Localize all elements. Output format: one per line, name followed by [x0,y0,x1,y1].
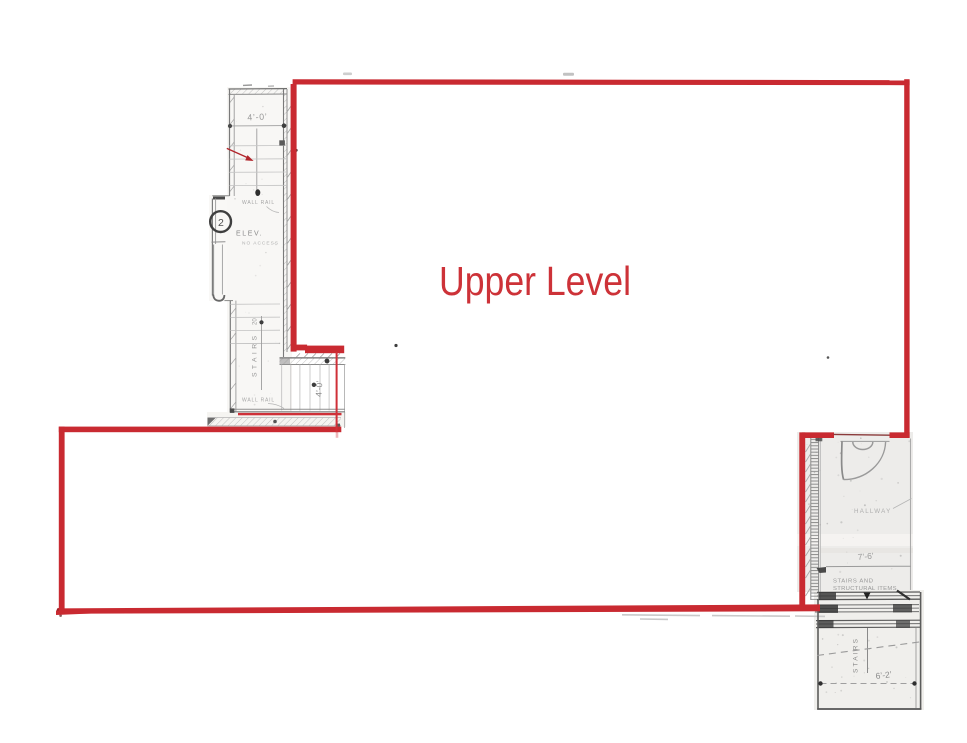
svg-text:6’-2’: 6’-2’ [875,669,892,681]
svg-text:HALLWAY: HALLWAY [854,508,892,515]
svg-text:Upper Level: Upper Level [439,258,631,304]
svg-text:STRUCTURAL ITEMS: STRUCTURAL ITEMS [833,586,897,592]
svg-text:20: 20 [253,318,259,325]
svg-text:4’-0’: 4’-0’ [314,380,325,397]
svg-text:WALL RAIL: WALL RAIL [242,200,275,206]
svg-text:7’-6’: 7’-6’ [857,551,874,562]
svg-text:STAIRS: STAIRS [252,333,259,377]
svg-text:NO ACCESS: NO ACCESS [242,241,279,247]
svg-text:WALL RAIL: WALL RAIL [242,398,275,404]
svg-text:STAIRS: STAIRS [853,637,860,673]
svg-text:STAIRS AND: STAIRS AND [833,579,874,585]
svg-text:4’-0’: 4’-0’ [247,111,268,122]
svg-text:ELEV.: ELEV. [236,231,263,238]
svg-text:2: 2 [218,217,224,229]
